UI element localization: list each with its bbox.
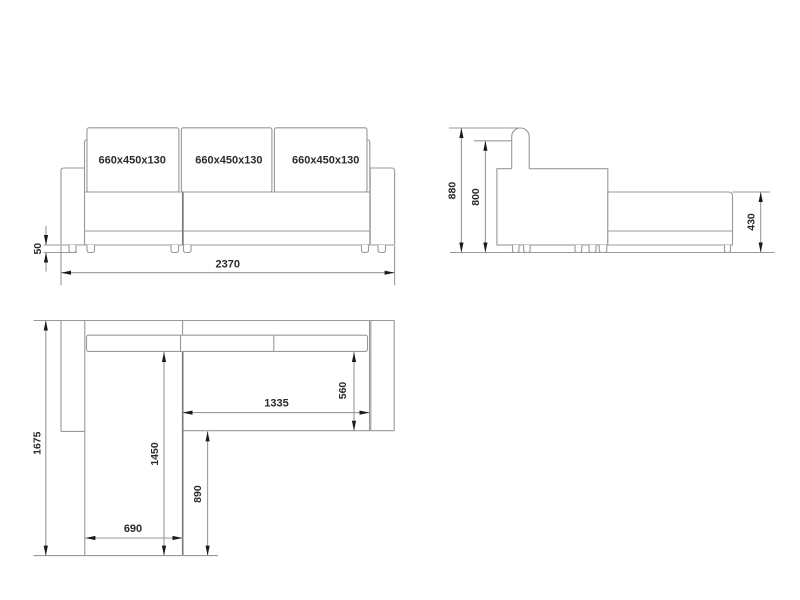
svg-text:560: 560 — [337, 382, 349, 400]
svg-text:800: 800 — [470, 188, 482, 206]
svg-text:1675: 1675 — [32, 431, 44, 455]
svg-text:1335: 1335 — [264, 397, 288, 409]
svg-text:2370: 2370 — [216, 259, 240, 271]
svg-text:660x450x130: 660x450x130 — [99, 155, 166, 167]
svg-text:430: 430 — [746, 213, 758, 231]
svg-text:880: 880 — [447, 182, 459, 200]
svg-text:50: 50 — [32, 243, 44, 255]
svg-text:660x450x130: 660x450x130 — [195, 155, 262, 167]
svg-text:690: 690 — [124, 523, 142, 535]
svg-text:890: 890 — [192, 485, 204, 503]
svg-text:1450: 1450 — [149, 442, 161, 466]
svg-text:660x450x130: 660x450x130 — [292, 155, 359, 167]
